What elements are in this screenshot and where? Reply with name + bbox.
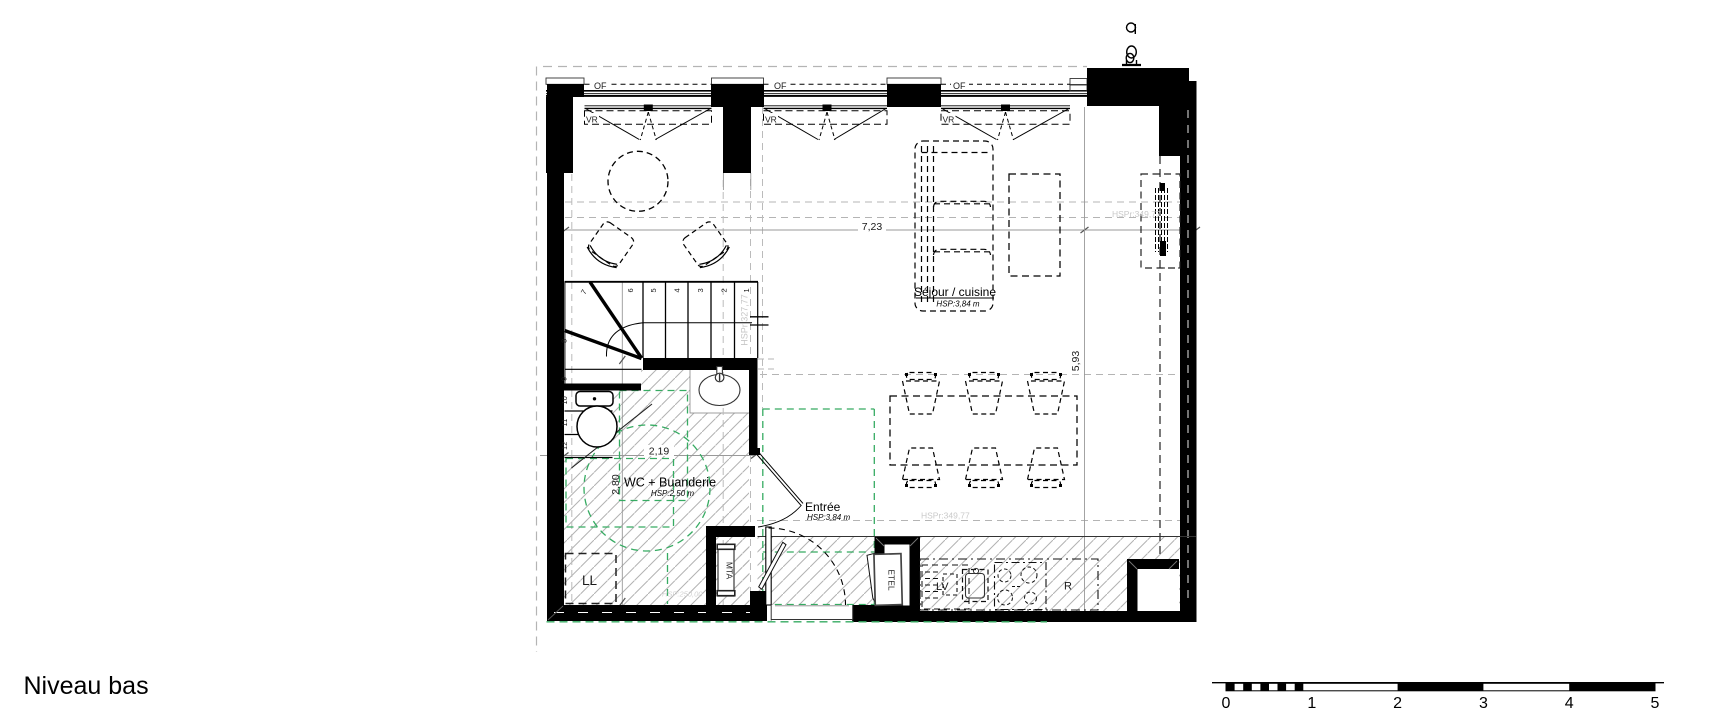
svg-text:VR: VR <box>943 115 955 125</box>
svg-text:MTA: MTA <box>725 562 735 580</box>
svg-text:2: 2 <box>1393 695 1402 712</box>
svg-text:HSPr:349,77: HSPr:349,77 <box>1112 209 1161 219</box>
svg-text:HSP:250,00: HSP:250,00 <box>662 590 703 599</box>
svg-text:LV: LV <box>936 581 949 593</box>
svg-text:11: 11 <box>560 419 569 427</box>
svg-text:4: 4 <box>673 288 682 292</box>
svg-text:OF: OF <box>594 81 607 91</box>
svg-text:8: 8 <box>560 339 569 343</box>
svg-text:2,80: 2,80 <box>610 474 622 495</box>
svg-text:9: 9 <box>560 377 569 381</box>
svg-text:10: 10 <box>560 396 569 404</box>
svg-text:5: 5 <box>649 288 658 292</box>
svg-text:4: 4 <box>1565 695 1574 712</box>
svg-text:Séjour / cuisine: Séjour / cuisine <box>914 285 996 299</box>
svg-text:LL: LL <box>582 573 598 588</box>
svg-text:VR: VR <box>586 115 598 125</box>
svg-text:HSP:2,50 m: HSP:2,50 m <box>651 489 694 498</box>
svg-text:HSPr:349,77: HSPr:349,77 <box>921 511 970 521</box>
svg-text:0: 0 <box>1222 695 1231 712</box>
svg-text:2: 2 <box>720 288 729 292</box>
svg-text:5,93: 5,93 <box>1070 351 1082 372</box>
svg-text:Entrée: Entrée <box>805 500 841 514</box>
svg-text:2,19: 2,19 <box>649 446 670 458</box>
svg-text:1: 1 <box>742 288 751 292</box>
svg-text:12: 12 <box>560 442 569 450</box>
svg-text:3: 3 <box>696 288 705 292</box>
svg-text:HSPr 327,77: HSPr 327,77 <box>740 294 750 346</box>
svg-text:5: 5 <box>1651 695 1660 712</box>
svg-text:VR: VR <box>765 115 777 125</box>
svg-text:1: 1 <box>1307 695 1316 712</box>
svg-text:3: 3 <box>1479 695 1488 712</box>
svg-text:ETEL: ETEL <box>887 569 897 591</box>
svg-text:HSP:3,84 m: HSP:3,84 m <box>936 300 979 309</box>
svg-text:Niveau bas: Niveau bas <box>24 672 149 700</box>
svg-text:R: R <box>1064 581 1072 593</box>
svg-text:OF: OF <box>774 81 787 91</box>
svg-text:HSP:3,84 m: HSP:3,84 m <box>807 513 850 522</box>
svg-text:OF: OF <box>953 81 966 91</box>
svg-text:6: 6 <box>626 288 635 292</box>
svg-text:7,23: 7,23 <box>862 221 883 233</box>
svg-text:WC + Buanderie: WC + Buanderie <box>624 476 716 490</box>
